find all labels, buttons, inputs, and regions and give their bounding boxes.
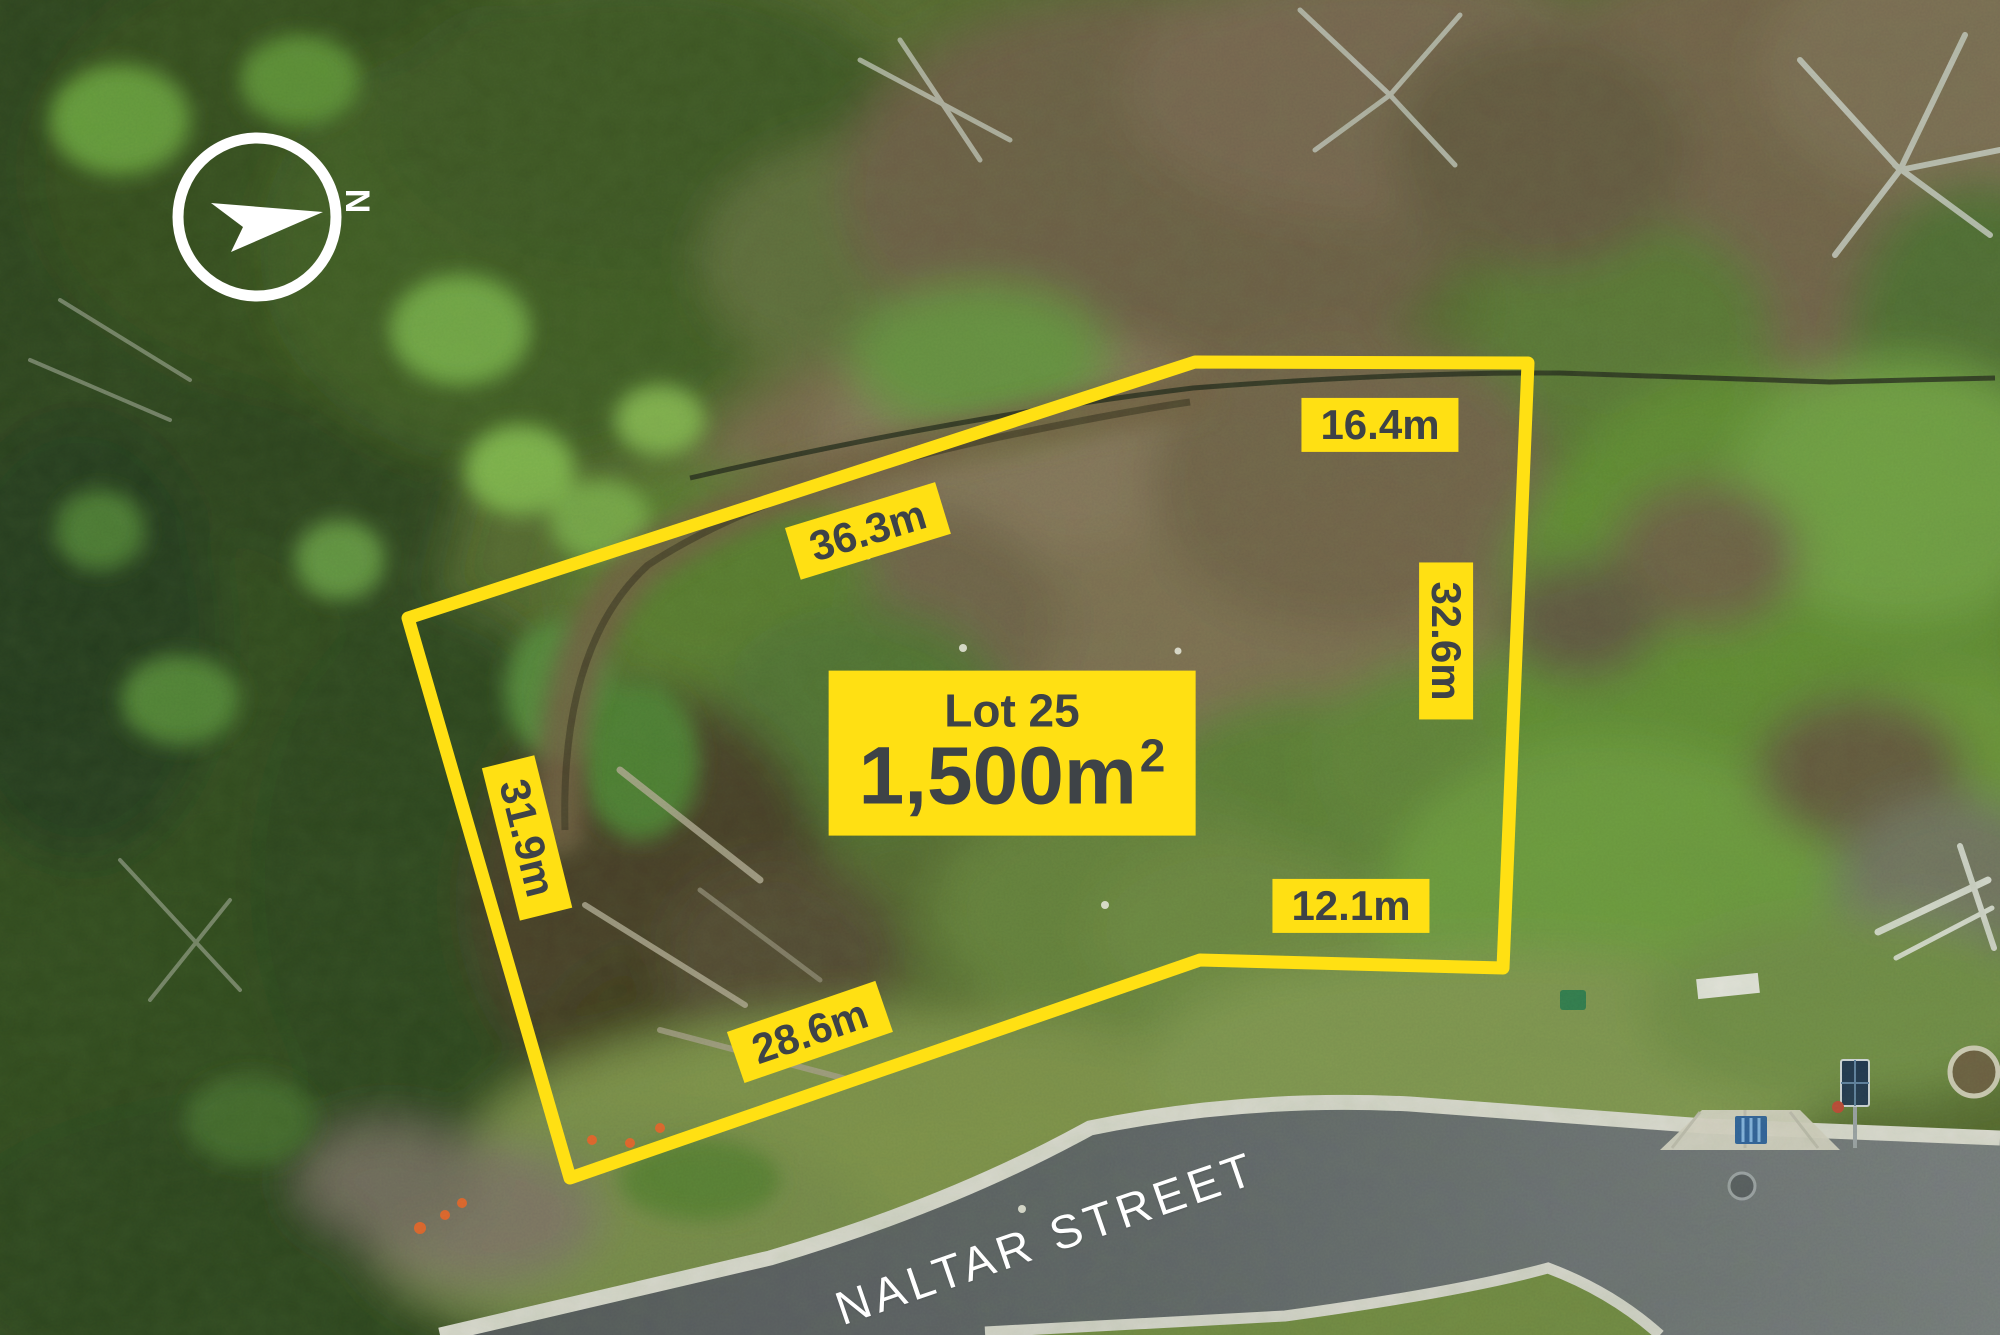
- lot-area-value: 1,500m: [859, 731, 1137, 822]
- compass-icon: N: [150, 95, 390, 335]
- lot-area-badge: Lot 25 1,500m2: [829, 671, 1196, 836]
- compass-north-label: N: [338, 189, 376, 214]
- compass-arrow: [211, 203, 323, 252]
- dimension-label-bottom-inner-edge: 12.1m: [1272, 879, 1429, 933]
- dimension-label-top-edge: 16.4m: [1301, 398, 1458, 452]
- lot-area-exponent: 2: [1140, 730, 1166, 782]
- dimension-label-right-edge: 32.6m: [1419, 562, 1473, 719]
- aerial-lot-scene: N 36.3m 16.4m 32.6m 31.9m 12.1m 28.6m Lo…: [0, 0, 2000, 1335]
- lot-area: 1,500m2: [859, 738, 1166, 816]
